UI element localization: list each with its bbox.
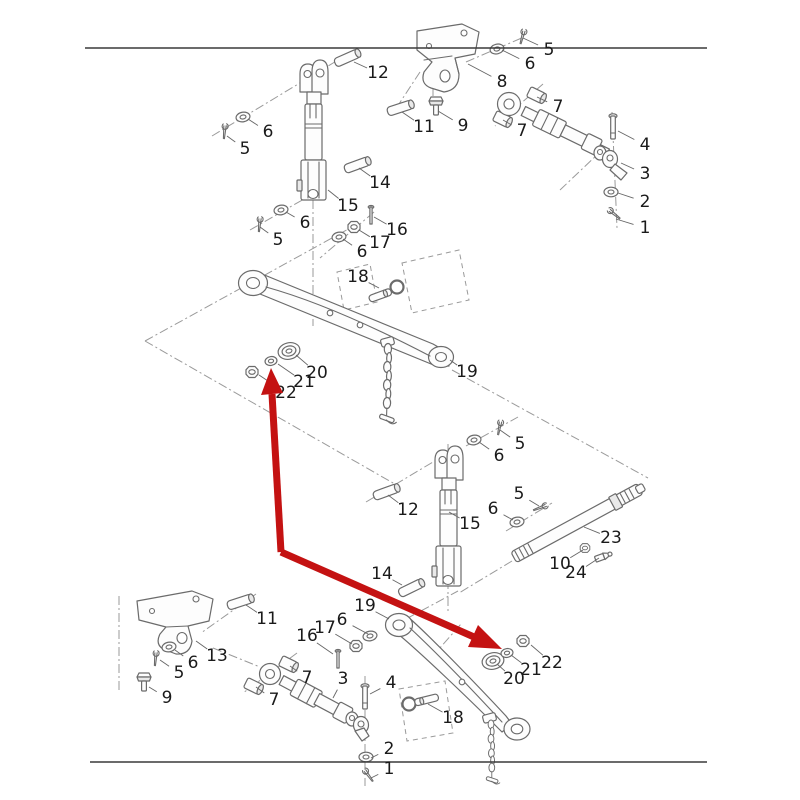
leader-line (428, 704, 443, 712)
part-21-washer (264, 356, 277, 367)
leader-line (278, 364, 294, 375)
part-24-grease-fitting (594, 550, 613, 562)
part-label-6: 6 (188, 653, 199, 673)
part-23-leveling-rod (510, 480, 647, 564)
red-arrow-head (261, 368, 283, 395)
red-arrow-head (468, 625, 502, 649)
leader-line (468, 64, 491, 76)
part-label-5: 5 (174, 663, 185, 683)
leader-line (529, 500, 539, 506)
part-4-pin (609, 114, 617, 139)
leader-line (570, 550, 583, 558)
part-label-17: 17 (369, 233, 391, 253)
leader-line (500, 430, 510, 437)
leader-line (370, 689, 380, 694)
leader-line (504, 515, 513, 520)
part-label-4: 4 (640, 135, 651, 155)
part-8-bracket (417, 24, 479, 92)
part-9-bolt (137, 673, 151, 691)
part-17-nut (350, 641, 362, 652)
leader-line (438, 111, 453, 120)
part-label-23: 23 (600, 528, 622, 548)
leader-line (479, 442, 489, 449)
part-label-6: 6 (488, 499, 499, 519)
leader-line (260, 227, 268, 233)
part-16-pin (368, 206, 374, 225)
part-3-fork-end (346, 712, 369, 741)
part-6-washer (235, 111, 250, 123)
part-11-pin (226, 593, 255, 610)
part-label-11: 11 (256, 609, 278, 629)
part-1-cotter-pin (606, 207, 621, 221)
part-label-19: 19 (354, 596, 376, 616)
part-label-24: 24 (565, 563, 587, 583)
leader-line (149, 687, 157, 692)
part-12-pin (372, 483, 401, 501)
leader-line (317, 643, 333, 654)
leader-line (227, 136, 235, 142)
part-label-15: 15 (337, 196, 359, 216)
leader-line (618, 131, 634, 139)
leader-line (371, 774, 378, 778)
part-label-6: 6 (525, 54, 536, 74)
leader-line (621, 163, 634, 169)
part-6-washer (509, 516, 524, 528)
part-label-6: 6 (337, 610, 348, 630)
part-label-6: 6 (494, 446, 505, 466)
part-14-pin (343, 156, 372, 174)
part-label-18: 18 (442, 708, 464, 728)
part-label-2: 2 (384, 739, 395, 759)
part-label-19: 19 (456, 362, 478, 382)
part-22-nut (246, 367, 258, 378)
part-label-7: 7 (269, 690, 280, 710)
part-label-14: 14 (371, 564, 393, 584)
part-label-12: 12 (367, 63, 389, 83)
part-label-7: 7 (517, 121, 528, 141)
leader-line (160, 660, 169, 666)
red-annotation-arrow (261, 368, 502, 649)
leader-line (353, 626, 368, 634)
part-6-washer (466, 434, 481, 446)
part-label-1: 1 (640, 218, 651, 238)
part-label-1: 1 (384, 759, 395, 779)
leader-line (523, 38, 538, 45)
part-2-washer (604, 187, 618, 197)
part-label-22: 22 (541, 653, 563, 673)
leader-line (359, 230, 370, 237)
part-label-6: 6 (263, 122, 274, 142)
part-label-7: 7 (302, 668, 313, 688)
part-12-pin (333, 48, 362, 67)
part-label-5: 5 (544, 40, 555, 60)
part-label-20: 20 (503, 669, 525, 689)
part-4-pin (361, 684, 369, 709)
part-2-washer (359, 752, 373, 762)
part-6-washer (489, 43, 505, 56)
leader-line (354, 62, 367, 68)
part-label-17: 17 (314, 618, 336, 638)
part-label-6: 6 (300, 213, 311, 233)
part-label-7: 7 (553, 97, 564, 117)
part-label-4: 4 (386, 673, 397, 693)
part-label-2: 2 (640, 192, 651, 212)
leader-line (616, 219, 634, 224)
part-1-cotter-pin (362, 767, 376, 783)
part-label-15: 15 (459, 514, 481, 534)
leader-line (343, 239, 352, 245)
part-15-lift-link (297, 60, 328, 200)
part-18-linch-pin (403, 694, 440, 711)
leader-line (502, 50, 519, 59)
part-label-12: 12 (397, 500, 419, 520)
leader-line (248, 119, 258, 125)
leader-line (333, 690, 337, 698)
part-5-cotter-pin (518, 28, 528, 44)
part-5-cotter-pin (152, 650, 160, 666)
part-label-18: 18 (347, 267, 369, 287)
part-label-3: 3 (640, 164, 651, 184)
part-label-6: 6 (357, 242, 368, 262)
part-6-washer (273, 204, 288, 216)
part-label-14: 14 (369, 173, 391, 193)
part-label-3: 3 (338, 669, 349, 689)
part-label-5: 5 (273, 230, 284, 250)
part-20-washer (276, 340, 301, 361)
leader-line (376, 612, 389, 619)
leader-line (335, 634, 352, 644)
callout-labels: 1285611977432165141565161761819202122561… (162, 40, 651, 779)
part-label-5: 5 (240, 139, 251, 159)
part-16-pin (335, 650, 341, 669)
part-label-5: 5 (515, 434, 526, 454)
part-label-9: 9 (162, 688, 173, 708)
part-21-washer (500, 648, 513, 659)
part-14-pin (397, 578, 426, 598)
parts-diagram-page: 1285611977432165141565161761819202122561… (0, 0, 800, 800)
part-6-washer (331, 231, 346, 243)
parts-drawings (137, 24, 647, 784)
leader-line (374, 217, 387, 224)
part-22-nut (517, 636, 529, 647)
part-label-13: 13 (206, 646, 228, 666)
exploded-parts-diagram: 1285611977432165141565161761819202122561… (0, 0, 800, 800)
part-17-nut (348, 222, 360, 233)
part-5-cotter-pin (256, 216, 264, 232)
leader-line (393, 580, 402, 585)
part-label-11: 11 (413, 117, 435, 137)
part-label-8: 8 (497, 72, 508, 92)
part-label-9: 9 (458, 116, 469, 136)
part-7-bushing (526, 87, 547, 105)
leader-line (286, 212, 295, 217)
construction-lines (119, 37, 648, 786)
part-label-5: 5 (514, 484, 525, 504)
leader-line (584, 527, 600, 533)
leader-line (618, 193, 634, 198)
